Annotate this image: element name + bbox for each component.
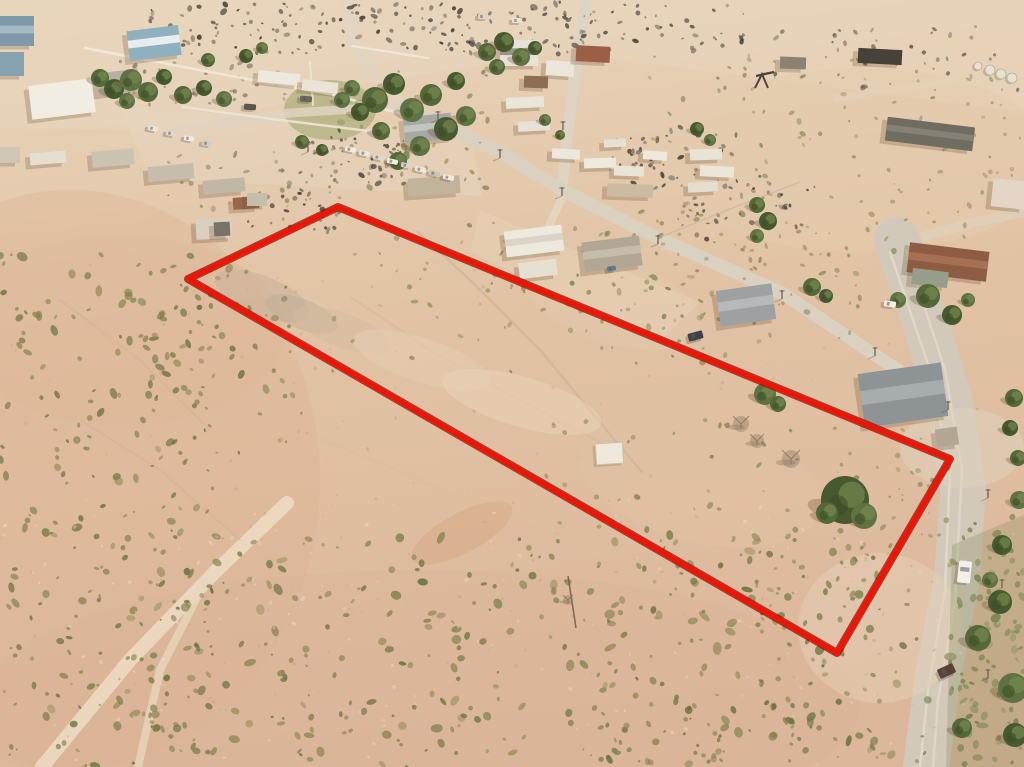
vehicle — [244, 103, 256, 110]
tree-core — [530, 47, 536, 53]
tree-core — [354, 110, 362, 118]
tree-core — [515, 55, 523, 63]
building — [935, 427, 959, 448]
tree-core — [336, 98, 343, 105]
tree-core — [497, 40, 505, 48]
building — [991, 178, 1024, 209]
tree-core — [158, 75, 165, 82]
scrub-blob — [392, 126, 397, 129]
storage-tank — [996, 69, 1006, 79]
tree-core — [1012, 456, 1019, 463]
tree-core — [177, 93, 185, 101]
building — [247, 193, 267, 206]
tree-core — [107, 87, 115, 95]
tree-core — [945, 313, 953, 321]
tree-core — [375, 129, 383, 137]
building — [584, 157, 616, 168]
tree-core — [819, 511, 828, 520]
tree-core — [318, 149, 323, 154]
tree-core — [403, 108, 413, 118]
tree-core — [757, 392, 766, 401]
scrub-blob — [492, 222, 495, 225]
building — [780, 57, 806, 70]
tree-core — [955, 726, 963, 734]
concrete-slab — [595, 442, 623, 465]
aerial-photo — [0, 0, 1024, 767]
building — [0, 52, 24, 76]
junk-blob — [368, 181, 370, 183]
scrub-blob — [963, 222, 967, 228]
tree-core — [963, 299, 969, 305]
tree-core — [541, 119, 546, 124]
building — [688, 181, 718, 193]
tree-core — [1004, 426, 1011, 433]
vehicle — [300, 95, 312, 102]
tree-core — [141, 90, 149, 98]
tree-core — [258, 47, 263, 52]
building — [524, 76, 548, 89]
storage-tank — [985, 65, 995, 75]
tree-core — [1006, 733, 1016, 743]
vehicle-windshield — [186, 137, 189, 140]
tree-core — [386, 82, 395, 91]
vehicle-windshield — [514, 19, 517, 22]
tree-core — [121, 99, 128, 106]
tree-core — [459, 114, 467, 122]
tree-core — [1008, 396, 1016, 404]
building — [604, 138, 626, 147]
building — [643, 150, 668, 161]
aerial-photo-stage — [0, 0, 1024, 767]
building — [700, 165, 735, 178]
tree-core — [692, 128, 698, 134]
tree-core — [94, 76, 102, 84]
tree-core — [821, 295, 827, 301]
tree-core — [855, 513, 866, 524]
tree-core — [806, 285, 814, 293]
vehicle — [957, 560, 972, 583]
tree-core — [706, 139, 711, 144]
vehicle-windshield — [204, 142, 207, 145]
vehicle-windshield — [168, 132, 171, 135]
scrub-blob — [699, 214, 704, 217]
scrub-blob — [342, 731, 347, 734]
tree-core — [198, 86, 205, 93]
roof-ridge — [0, 26, 34, 34]
tree-core — [346, 86, 353, 93]
building — [607, 183, 653, 198]
building — [576, 45, 611, 63]
tree-core — [1002, 685, 1015, 698]
tree-core — [491, 65, 498, 72]
tree-core — [995, 543, 1003, 551]
building — [214, 222, 231, 237]
building — [552, 148, 580, 159]
tree-core — [413, 144, 421, 152]
junk-blob — [582, 30, 586, 33]
scrub-blob — [661, 242, 665, 245]
building — [0, 147, 20, 163]
tree-core — [762, 219, 770, 227]
tree-core — [437, 127, 447, 137]
building — [690, 148, 722, 160]
junk-blob — [253, 3, 257, 7]
tree-core — [123, 78, 132, 87]
tree-core — [481, 50, 489, 58]
building — [858, 48, 903, 65]
vehicle-windshield — [886, 302, 889, 306]
building — [506, 96, 545, 109]
tree-core — [423, 93, 432, 102]
vehicle — [478, 14, 488, 19]
vehicle-windshield — [302, 97, 305, 101]
tree-core — [751, 203, 758, 210]
tree-core — [556, 134, 560, 138]
tree-core — [203, 59, 209, 65]
tree-core — [991, 600, 1001, 610]
junk-blob — [837, 48, 839, 53]
tree-core — [366, 97, 377, 108]
tree-core — [752, 235, 758, 241]
tree-core — [969, 635, 980, 646]
vehicle-windshield — [246, 105, 249, 109]
building — [614, 165, 644, 176]
scrub-blob — [713, 642, 722, 655]
tree-core — [1013, 498, 1021, 506]
tree-core — [919, 294, 929, 304]
tree-core — [772, 402, 779, 409]
building — [546, 60, 575, 77]
tree-core — [297, 141, 303, 147]
tree-core — [450, 79, 458, 87]
vehicle-windshield — [150, 127, 153, 130]
vehicle-windshield — [480, 15, 483, 18]
tree-core — [241, 55, 247, 61]
storage-tank — [974, 62, 982, 70]
storage-tank — [1007, 73, 1017, 83]
tree-core — [218, 97, 225, 104]
vehicle — [512, 18, 522, 23]
tree-core — [984, 578, 991, 585]
speckle_light-blob — [477, 640, 479, 643]
